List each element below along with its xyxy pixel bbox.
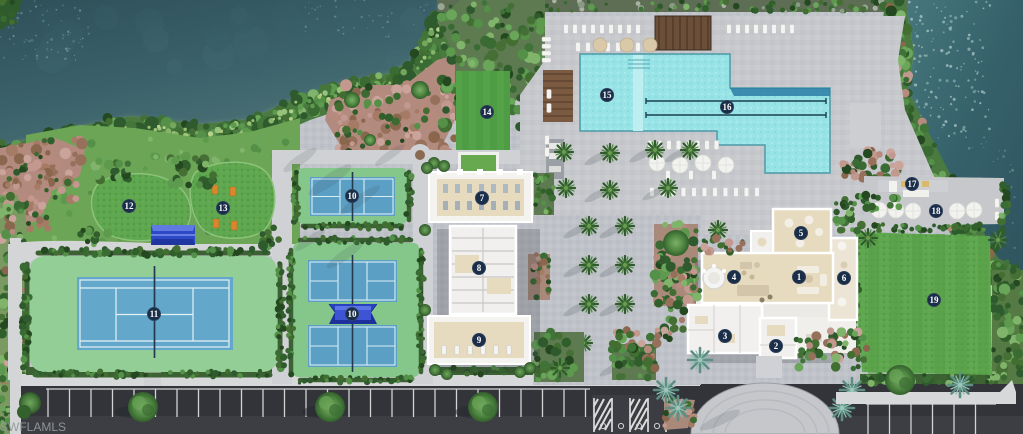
svg-text:8: 8 (477, 263, 482, 273)
svg-text:10: 10 (348, 309, 358, 319)
svg-text:18: 18 (932, 206, 942, 216)
svg-text:1: 1 (797, 272, 802, 282)
svg-text:12: 12 (125, 201, 135, 211)
svg-text:15: 15 (603, 90, 613, 100)
svg-text:10: 10 (348, 191, 358, 201)
svg-text:14: 14 (483, 107, 493, 117)
svg-text:17: 17 (908, 179, 918, 189)
svg-text:13: 13 (219, 203, 229, 213)
svg-text:16: 16 (723, 102, 733, 112)
svg-text:19: 19 (930, 295, 940, 305)
svg-text:6: 6 (842, 273, 847, 283)
svg-text:9: 9 (477, 335, 482, 345)
svg-text:2: 2 (774, 341, 779, 351)
svg-text:5: 5 (799, 228, 804, 238)
svg-text:11: 11 (150, 309, 159, 319)
svg-text:4: 4 (732, 272, 737, 282)
svg-text:3: 3 (723, 331, 728, 341)
svg-text:SWFLAMLS: SWFLAMLS (0, 420, 66, 434)
svg-text:7: 7 (480, 193, 485, 203)
